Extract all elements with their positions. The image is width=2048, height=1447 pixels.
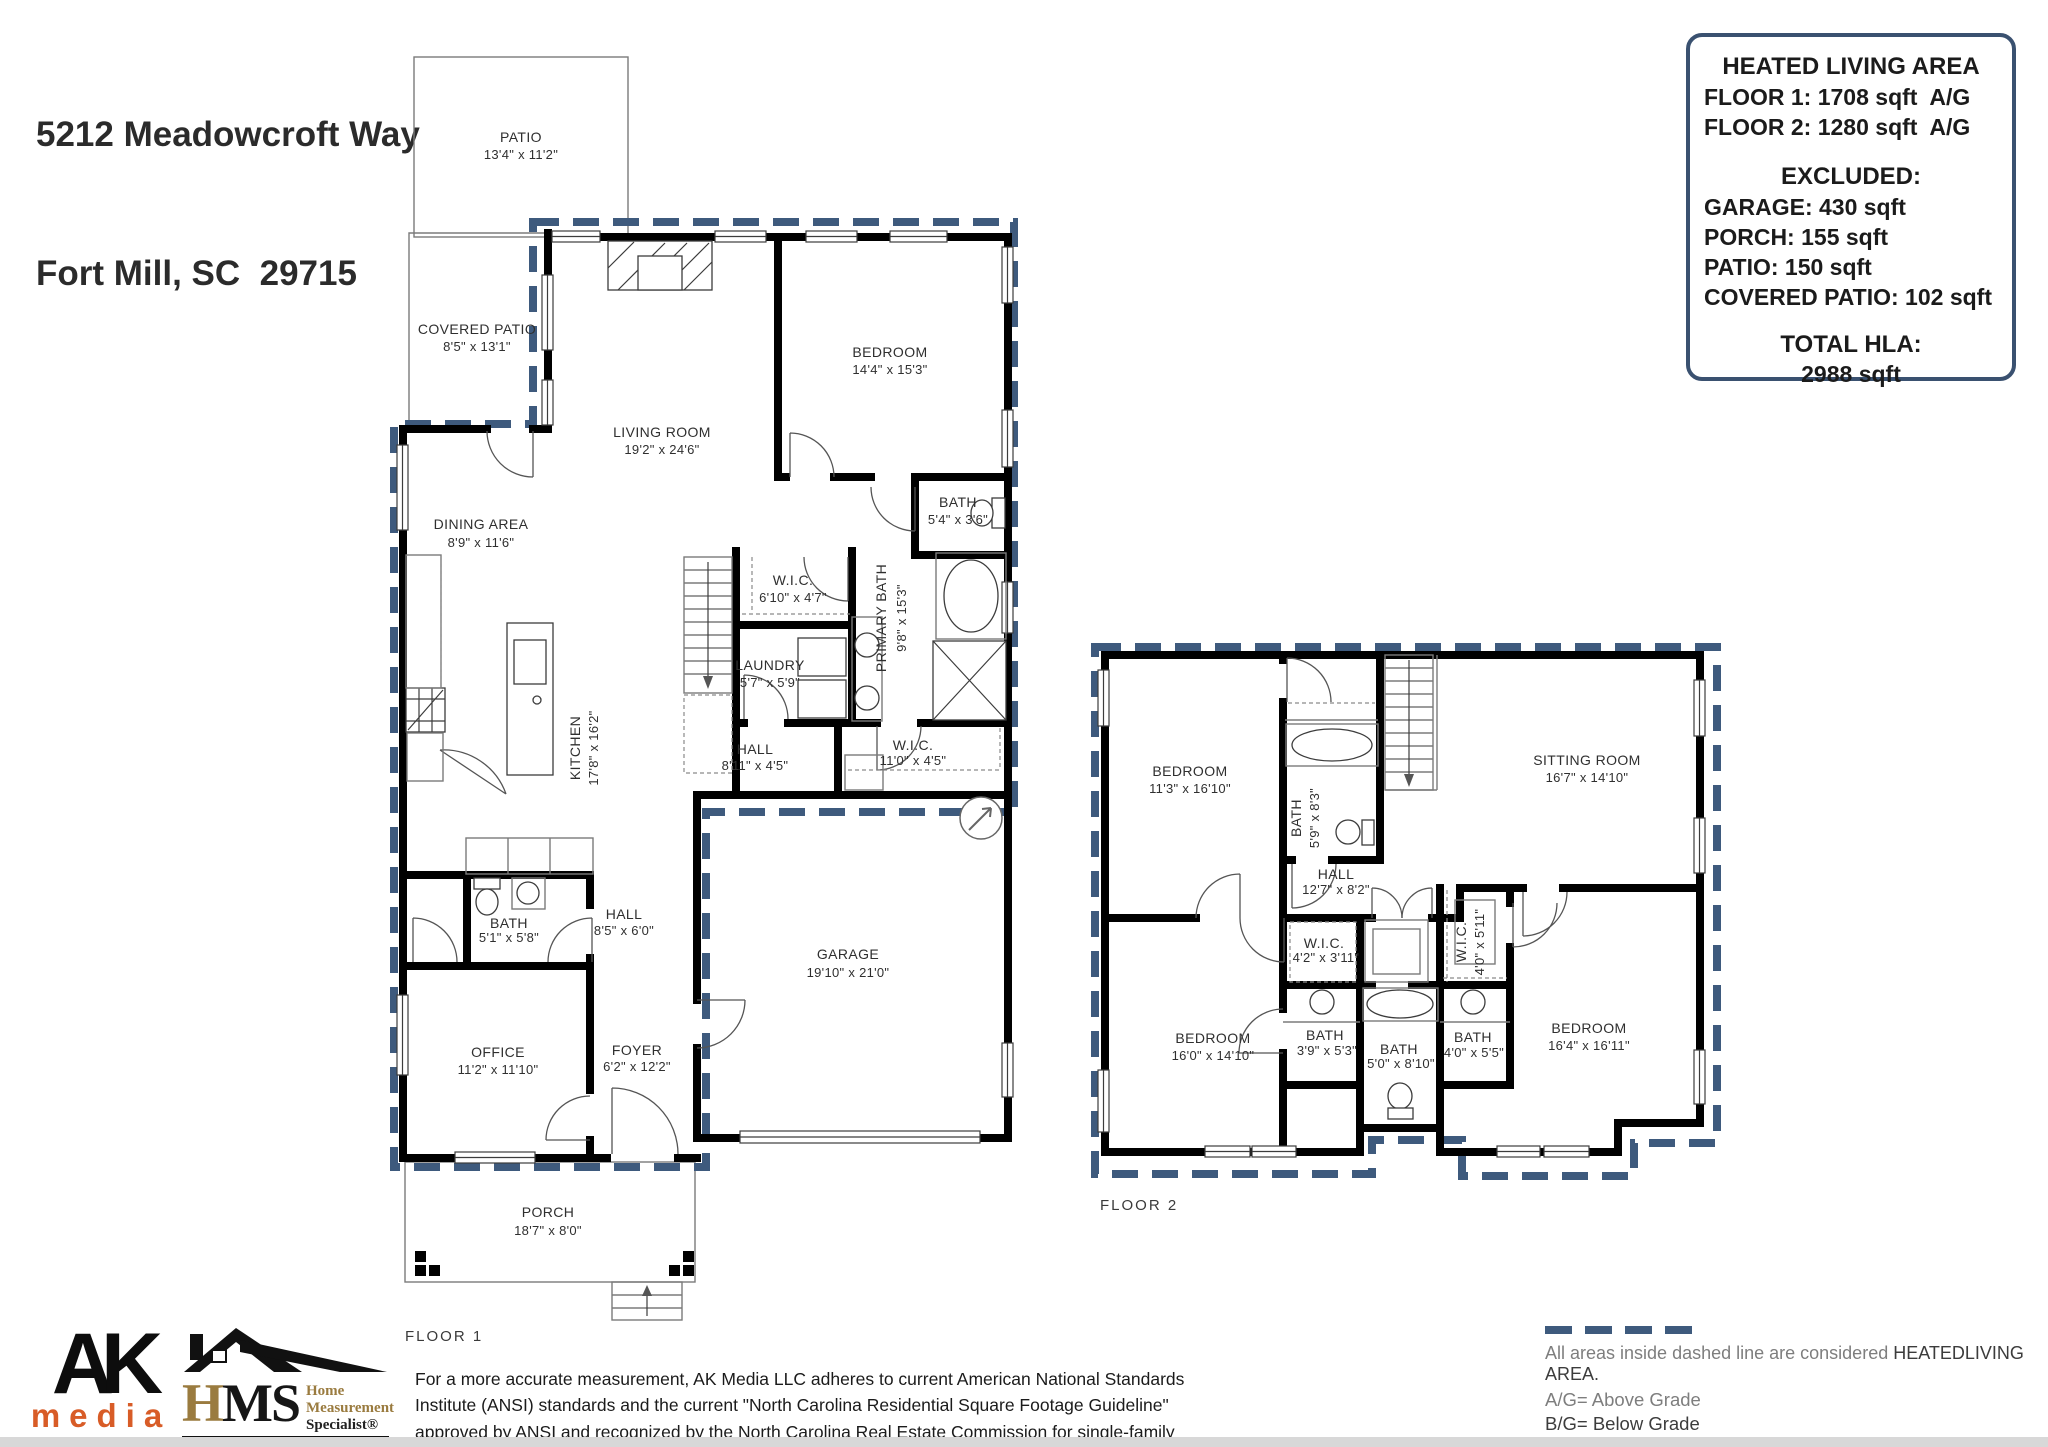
room-dims-f2-bedroom3: 16'4" x 16'11"	[1548, 1038, 1630, 1053]
hms-logo: HMS Home Measurement Specialist®	[182, 1326, 402, 1447]
staircase-floor1	[684, 557, 732, 773]
porch-outline	[405, 1162, 695, 1282]
room-dims-kitchen: 17'8" x 16'2"	[586, 710, 601, 785]
room-dims-patio: 13'4" x 11'2"	[484, 147, 558, 162]
room-dims-laundry: 5'7" x 5'9"	[740, 675, 800, 690]
room-label-bath2: BATH	[490, 915, 528, 931]
room-dims-porch: 18'7" x 8'0"	[514, 1223, 582, 1238]
room-dims-covered-patio: 8'5" x 13'1"	[443, 339, 511, 354]
floor1-caption: FLOOR 1	[405, 1328, 483, 1345]
room-dims-dining: 8'9" x 11'6"	[448, 535, 515, 550]
fridge	[407, 733, 443, 781]
room-label-sitting: SITTING ROOM	[1533, 752, 1640, 768]
porch-posts	[415, 1251, 694, 1276]
room-dims-f2-bath1: 5'9" x 8'3"	[1307, 788, 1322, 848]
room-dims-wic2: 11'0" x 4'5"	[880, 753, 947, 768]
fireplace	[608, 241, 712, 290]
legend-line2: A/G= Above Grade	[1545, 1389, 2025, 1411]
hms-wordmark: HMS	[182, 1379, 299, 1428]
room-dims-garage: 19'10" x 21'0"	[807, 965, 890, 980]
laundry-appliances	[798, 638, 846, 718]
hms-tag1: Home	[306, 1383, 394, 1400]
room-dims-f2-bedroom2: 16'0" x 14'10"	[1172, 1048, 1255, 1063]
legend-dash-sample	[1545, 1326, 2025, 1334]
bath-fixtures-floor1	[474, 878, 545, 915]
staircase-floor2	[1385, 655, 1437, 790]
room-label-living: LIVING ROOM	[613, 424, 711, 440]
legend: All areas inside dashed line are conside…	[1545, 1326, 2025, 1447]
ak-logo-text: AK	[26, 1328, 176, 1401]
room-label-laundry: LAUNDRY	[735, 657, 805, 673]
room-label-f2-bath3: BATH	[1380, 1041, 1418, 1057]
room-dims-f2-bath3: 5'0" x 8'10"	[1367, 1056, 1435, 1071]
floor2-walls	[1105, 655, 1700, 1152]
room-dims-bath2: 5'1" x 5'8"	[479, 930, 539, 945]
room-dims-f2-bath4: 4'0" x 5'5"	[1444, 1045, 1504, 1060]
room-dims-living: 19'2" x 24'6"	[624, 442, 699, 457]
room-label-garage: GARAGE	[817, 946, 879, 962]
room-label-f2-bath1: BATH	[1288, 799, 1304, 837]
floor2-plan: BEDROOM 11'3" x 16'10" BATH 5'9" x 8'3" …	[1095, 647, 1717, 1214]
room-dims-bedroom: 14'4" x 15'3"	[852, 362, 927, 377]
hms-tag2: Measurement	[306, 1400, 394, 1417]
room-dims-hall1: 8'11" x 4'5"	[722, 758, 789, 773]
kitchen-lower-counter	[466, 838, 593, 874]
legend-line1: All areas inside dashed line are conside…	[1545, 1343, 2025, 1385]
room-label-primary-bath: PRIMARY BATH	[873, 564, 889, 672]
hall-closet	[1365, 920, 1428, 982]
room-dims-sitting: 16'7" x 14'10"	[1546, 770, 1629, 785]
room-dims-foyer: 6'2" x 12'2"	[603, 1059, 671, 1074]
room-label-kitchen: KITCHEN	[567, 716, 583, 780]
room-label-wic2: W.I.C.	[893, 737, 934, 753]
room-label-f2-hall: HALL	[1318, 866, 1355, 882]
room-label-hall2: HALL	[606, 906, 643, 922]
room-dims-bath1: 5'4" x 3'6"	[928, 512, 988, 527]
room-label-f2-bedroom1: BEDROOM	[1152, 763, 1227, 779]
room-dims-f2-wic1: 4'2" x 3'11"	[1293, 950, 1360, 965]
room-dims-f2-bath2: 3'9" x 5'3"	[1297, 1043, 1357, 1058]
room-label-f2-bedroom2: BEDROOM	[1175, 1030, 1250, 1046]
legend-line1a: All areas inside dashed line are conside…	[1545, 1343, 1893, 1363]
room-label-covered-patio: COVERED PATIO	[418, 321, 536, 337]
room-label-bath1: BATH	[939, 494, 977, 510]
room-label-wic1: W.I.C.	[773, 572, 814, 588]
room-dims-hall2: 8'5" x 6'0"	[594, 923, 654, 938]
room-dims-f2-bedroom1: 11'3" x 16'10"	[1149, 781, 1231, 796]
room-label-f2-bedroom3: BEDROOM	[1551, 1020, 1626, 1036]
room-label-dining: DINING AREA	[434, 516, 529, 532]
ak-logo-subtext: media	[26, 1397, 176, 1435]
compass-icon	[960, 797, 1002, 839]
room-label-hall1: HALL	[737, 741, 774, 757]
kitchen-counter	[406, 555, 441, 688]
floorplan-svg: PATIO 13'4" x 11'2" COVERED PATIO 8'5" x…	[0, 0, 2048, 1447]
room-dims-f2-wic2: 4'0" x 5'11"	[1472, 909, 1487, 976]
room-label-patio: PATIO	[500, 129, 542, 145]
hms-roof-icon	[182, 1326, 392, 1374]
room-label-office: OFFICE	[471, 1044, 525, 1060]
room-label-porch: PORCH	[522, 1204, 575, 1220]
floorplan-document: 5212 Meadowcroft Way Fort Mill, SC 29715…	[0, 0, 2048, 1447]
bottom-strip	[0, 1437, 2048, 1447]
room-dims-wic1: 6'10" x 4'7"	[759, 590, 827, 605]
room-dims-f2-hall: 12'7" x 8'2"	[1302, 882, 1370, 897]
room-label-foyer: FOYER	[612, 1042, 662, 1058]
hms-tagline: Home Measurement Specialist®	[306, 1379, 394, 1433]
measurement-disclaimer: For a more accurate measurement, AK Medi…	[415, 1366, 1185, 1447]
hms-ms: MS	[222, 1373, 299, 1433]
room-label-f2-wic2: W.I.C.	[1453, 922, 1469, 963]
legend-line3: B/G= Below Grade	[1545, 1413, 2025, 1435]
room-label-f2-bath2: BATH	[1306, 1027, 1344, 1043]
kitchen-island	[507, 623, 553, 775]
room-dims-office: 11'2" x 11'10"	[458, 1062, 539, 1077]
room-label-f2-wic1: W.I.C.	[1304, 935, 1345, 951]
floor2-caption: FLOOR 2	[1100, 1197, 1178, 1214]
hms-tag3: Specialist®	[306, 1417, 394, 1434]
hms-h: H	[182, 1373, 222, 1433]
room-label-f2-bath4: BATH	[1454, 1029, 1492, 1045]
floor1-plan: PATIO 13'4" x 11'2" COVERED PATIO 8'5" x…	[394, 57, 1014, 1345]
stove	[406, 688, 445, 732]
room-label-bedroom: BEDROOM	[852, 344, 927, 360]
ak-media-logo: AK media	[26, 1328, 176, 1435]
room-dims-primary-bath: 9'8" x 15'3"	[894, 584, 909, 652]
